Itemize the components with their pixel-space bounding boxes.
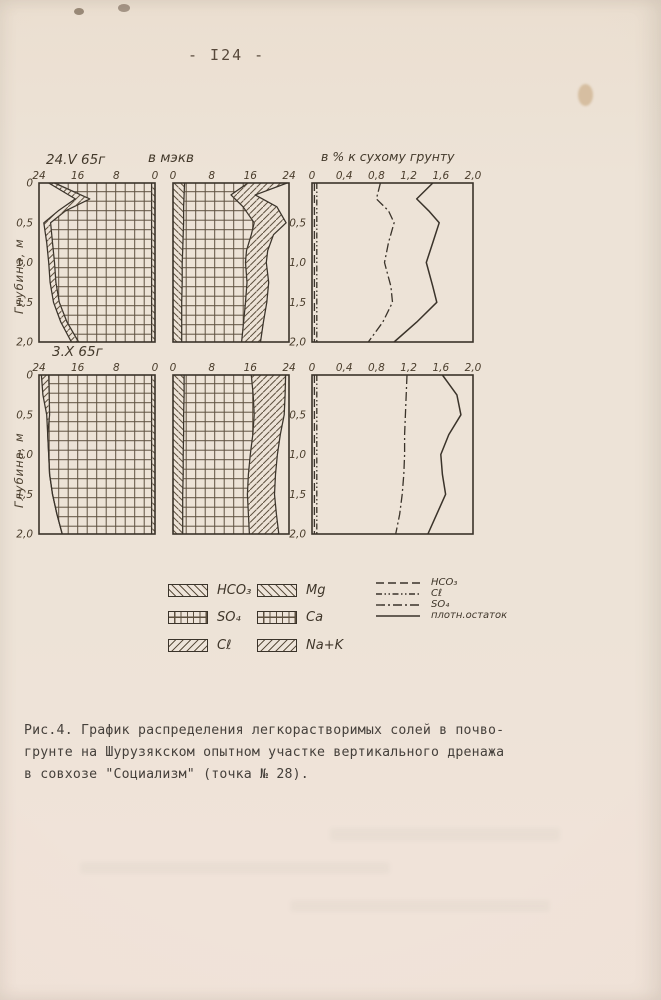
svg-text:8: 8 <box>208 362 215 374</box>
legend-item-hco3: HCO₃ <box>168 583 251 598</box>
svg-text:8: 8 <box>113 362 120 374</box>
dashed-line-sample <box>375 578 421 588</box>
legend-line-label-cl: Cℓ <box>431 588 442 599</box>
svg-text:0: 0 <box>170 170 177 182</box>
chart-percent-3x: 00,40,81,21,62,00,51,01,52,0 <box>289 360 475 536</box>
meqv-axis-title: в мэкв <box>148 150 194 166</box>
svg-text:0: 0 <box>152 362 159 374</box>
hatch-swatch-so4 <box>168 611 208 624</box>
legend-line-label-dense-residue: плотн.остаток <box>431 610 507 621</box>
svg-text:0,5: 0,5 <box>289 409 306 421</box>
svg-text:1,5: 1,5 <box>289 489 306 501</box>
svg-text:0: 0 <box>26 178 33 190</box>
svg-text:2,0: 2,0 <box>16 529 33 541</box>
legend-item-mg: Mg <box>257 583 325 598</box>
bleed-through-ghost <box>290 900 550 912</box>
percent-axis-title: в % к сухому грунту <box>321 149 455 164</box>
svg-text:1,0: 1,0 <box>289 257 306 269</box>
bleed-through-ghost <box>80 862 390 874</box>
solid-line-sample <box>375 611 421 621</box>
legend-label-hco3: HCO₃ <box>217 583 251 598</box>
row1-date-label: 24.V 65г <box>46 152 105 168</box>
svg-text:24: 24 <box>32 362 45 374</box>
page-number: - I24 - <box>188 46 265 64</box>
svg-text:0,5: 0,5 <box>16 217 33 229</box>
svg-text:0,8: 0,8 <box>368 362 385 374</box>
svg-text:1,5: 1,5 <box>16 489 33 501</box>
legend-line-hco3: HCO₃ <box>375 577 457 588</box>
svg-text:1,5: 1,5 <box>16 297 33 309</box>
row2-date-label: 3.X 65г <box>52 344 103 360</box>
svg-text:1,0: 1,0 <box>289 449 306 461</box>
dash-dot-line-sample <box>375 600 421 610</box>
legend-label-nak: Na+K <box>306 638 343 653</box>
chart-anions-3x: 24168000,51,01,52,0 <box>16 360 157 536</box>
chart-cations-3x: 081624 <box>172 360 291 536</box>
svg-text:1,6: 1,6 <box>432 170 449 182</box>
legend-line-cl: Cℓ <box>375 588 442 599</box>
svg-text:1,0: 1,0 <box>16 449 33 461</box>
legend-label-so4: SO₄ <box>217 610 241 625</box>
svg-text:0,4: 0,4 <box>336 362 353 374</box>
svg-text:2,0: 2,0 <box>16 337 33 349</box>
legend-item-cl: Cℓ <box>168 638 231 653</box>
hatch-swatch-ca <box>257 611 297 624</box>
svg-text:0: 0 <box>170 362 177 374</box>
legend-item-so4: SO₄ <box>168 610 241 625</box>
legend-item-nak: Na+K <box>257 638 343 653</box>
chart-cations-24v: 081624 <box>172 168 291 344</box>
chart-percent-24v: 00,40,81,21,62,00,51,01,52,0 <box>289 168 475 344</box>
svg-text:0,5: 0,5 <box>289 217 306 229</box>
svg-text:0: 0 <box>309 362 316 374</box>
dash-dot-dot-line-sample <box>375 589 421 599</box>
legend-item-ca: Ca <box>257 610 323 625</box>
svg-text:16: 16 <box>244 170 258 182</box>
svg-text:24: 24 <box>32 170 45 182</box>
svg-text:2,0: 2,0 <box>289 529 306 541</box>
svg-text:16: 16 <box>71 362 85 374</box>
svg-text:0,8: 0,8 <box>368 170 385 182</box>
ink-speck <box>118 4 130 12</box>
svg-text:2,0: 2,0 <box>465 362 482 374</box>
legend-line-so4: SO₄ <box>375 599 449 610</box>
svg-text:1,2: 1,2 <box>400 170 417 182</box>
hatch-swatch-mg <box>257 584 297 597</box>
hatch-swatch-nak <box>257 639 297 652</box>
legend-line-dense-residue: плотн.остаток <box>375 610 507 621</box>
svg-text:1,5: 1,5 <box>289 297 306 309</box>
caption-line-3: в совхозе "Социализм" (точка № 28). <box>24 764 559 786</box>
svg-text:0,5: 0,5 <box>16 409 33 421</box>
svg-text:8: 8 <box>208 170 215 182</box>
scanned-paper-page: - I24 - 24.V 65г в мэкв в % к сухому гру… <box>0 0 661 1000</box>
bleed-through-ghost <box>330 828 560 841</box>
svg-text:1,6: 1,6 <box>432 362 449 374</box>
legend-label-mg: Mg <box>306 583 325 598</box>
svg-text:8: 8 <box>113 170 120 182</box>
hatch-swatch-hco3 <box>168 584 208 597</box>
caption-line-2: грунте на Шурузякском опытном участке ве… <box>24 742 559 764</box>
legend-line-label-so4: SO₄ <box>431 599 449 610</box>
paper-stain <box>578 84 593 106</box>
svg-text:1,0: 1,0 <box>16 257 33 269</box>
figure-legend: HCO₃ Mg SO₄ Ca Cℓ Na+K HCO₃ Cℓ <box>168 577 568 661</box>
svg-text:16: 16 <box>244 362 258 374</box>
svg-text:0: 0 <box>26 370 33 382</box>
ink-speck <box>74 8 84 15</box>
hatch-swatch-cl <box>168 639 208 652</box>
legend-line-label-hco3: HCO₃ <box>431 577 457 588</box>
legend-label-ca: Ca <box>306 610 323 625</box>
svg-text:2,0: 2,0 <box>289 337 306 349</box>
svg-text:2,0: 2,0 <box>465 170 482 182</box>
svg-text:0,4: 0,4 <box>336 170 353 182</box>
svg-text:0: 0 <box>309 170 316 182</box>
caption-line-1: Рис.4. График распределения легкораствор… <box>24 720 559 742</box>
svg-text:0: 0 <box>152 170 159 182</box>
chart-anions-24v: 24168000,51,01,52,0 <box>16 168 157 344</box>
svg-text:16: 16 <box>71 170 85 182</box>
legend-label-cl: Cℓ <box>217 638 231 653</box>
svg-text:1,2: 1,2 <box>400 362 417 374</box>
figure-caption: Рис.4. График распределения легкораствор… <box>24 720 559 786</box>
